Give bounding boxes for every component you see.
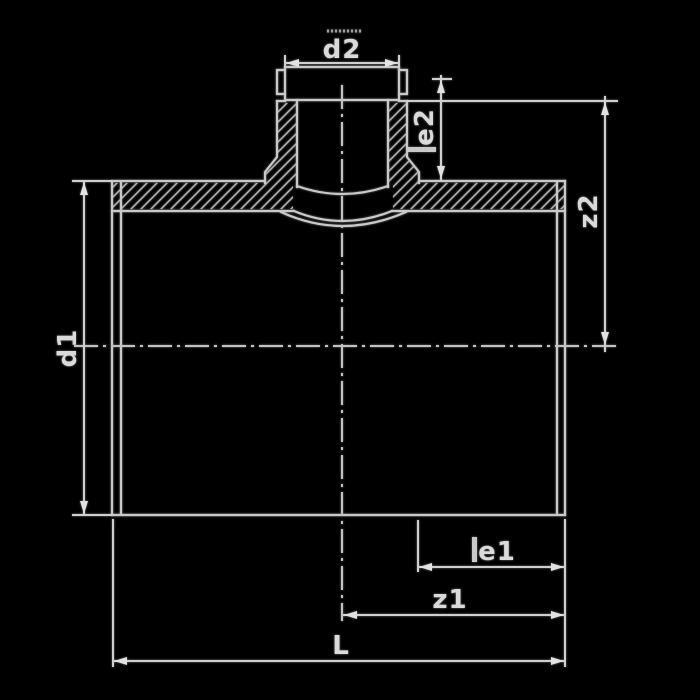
hatch-branch-wall-left: [266, 103, 297, 183]
z2-arrow-down-icon: [601, 332, 609, 345]
L-label: L: [332, 631, 350, 661]
branch-lip-right: [399, 70, 407, 94]
branch-lip-left: [277, 70, 285, 94]
z1-label: z1: [432, 585, 467, 615]
fitting-section-drawing: d2 e2 z2 d1 e1: [0, 0, 700, 700]
d1-arrow-down-icon: [80, 501, 88, 514]
z2-label: z2: [574, 193, 604, 228]
d1-label: d1: [53, 329, 83, 368]
d2-arrow-left-icon: [286, 59, 299, 67]
e2-arrow-up-icon: [437, 80, 445, 93]
dimension-d2: d2: [285, 31, 399, 67]
dimension-z1: z1: [343, 585, 565, 619]
z2-arrow-up-icon: [601, 102, 609, 115]
z1-arrow-right-icon: [551, 611, 564, 619]
e1-arrow-left-icon: [419, 563, 432, 571]
dimension-e1: e1: [418, 537, 565, 571]
d2-label: d2: [323, 35, 362, 65]
drawing-canvas: d2 e2 z2 d1 e1: [0, 0, 700, 700]
d1-arrow-up-icon: [80, 182, 88, 195]
e2-arrow-down-icon: [437, 166, 445, 179]
hatch-band-left: [113, 183, 293, 209]
e1-label: e1: [478, 537, 516, 567]
z1-arrow-left-icon: [344, 611, 357, 619]
e2-label-tick: [408, 147, 436, 152]
dimension-d1: d1: [53, 181, 112, 515]
e1-label-tick: [472, 537, 477, 562]
e2-label: e2: [410, 108, 440, 146]
d2-arrow-right-icon: [385, 59, 398, 67]
dimension-L: L: [113, 631, 565, 665]
e1-arrow-right-icon: [551, 563, 564, 571]
saddle-arcs: [281, 186, 406, 226]
L-arrow-right-icon: [551, 657, 564, 665]
main-pipe-body: [112, 181, 565, 515]
hatch-band-right: [393, 183, 564, 209]
L-arrow-left-icon: [114, 657, 127, 665]
centerlines: [74, 85, 619, 621]
